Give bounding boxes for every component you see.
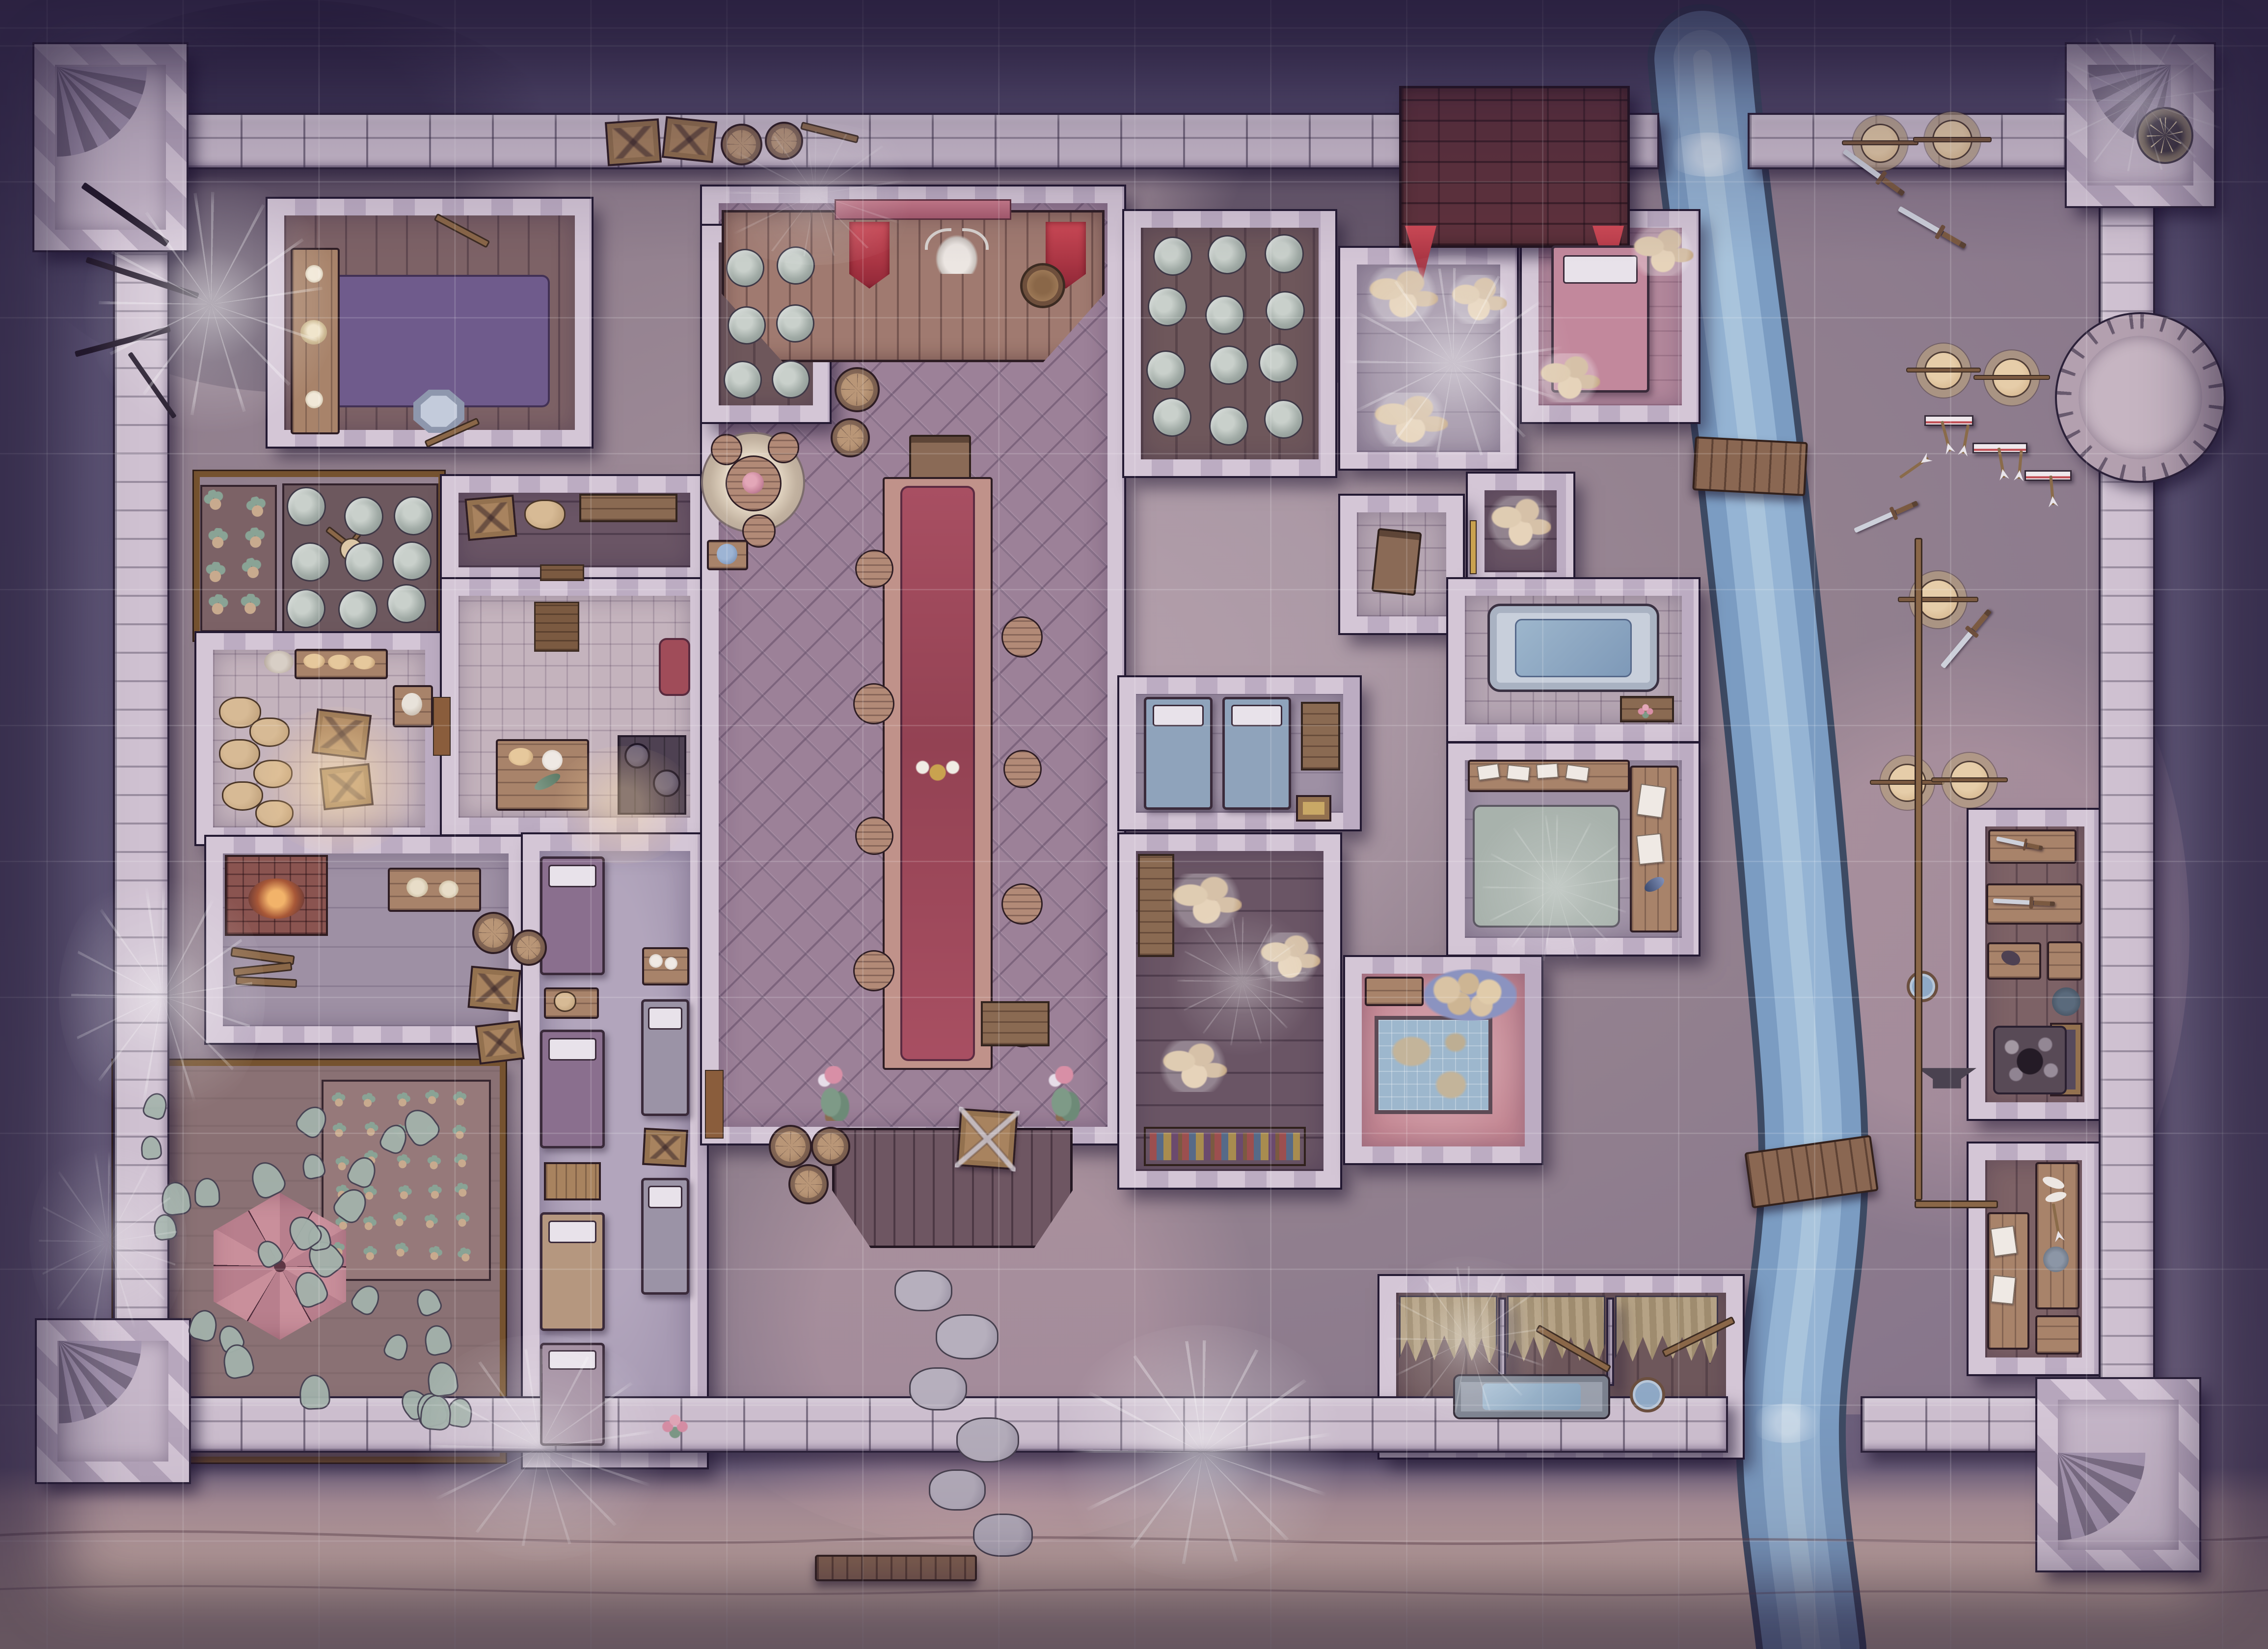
beach-plank xyxy=(815,1555,977,1581)
cup xyxy=(665,957,677,970)
candlestick xyxy=(305,391,323,408)
hearth-table xyxy=(388,868,481,912)
deer-skull xyxy=(935,235,978,274)
letter xyxy=(1565,764,1590,782)
letter xyxy=(1536,763,1559,779)
head-chair xyxy=(909,435,971,480)
tool-bench xyxy=(2035,1315,2080,1355)
door-threshold xyxy=(540,564,584,581)
bed xyxy=(641,999,689,1116)
bed xyxy=(641,1178,689,1295)
chained-crate xyxy=(956,1108,1018,1170)
coin-sack xyxy=(554,991,576,1012)
door-threshold xyxy=(705,1070,724,1139)
practice-dummy xyxy=(1917,579,1959,620)
spider-web xyxy=(403,1335,677,1561)
purple-rug xyxy=(319,275,550,407)
scroll-pile xyxy=(1424,969,1517,1021)
bowl xyxy=(439,880,459,898)
orchard-row-sprout xyxy=(330,1091,348,1109)
bed xyxy=(540,1212,605,1331)
orchard-row-sprout xyxy=(331,1122,348,1140)
yard-fence xyxy=(1915,538,1922,1200)
archery-target xyxy=(1924,415,1973,426)
stall-divider xyxy=(1606,1298,1614,1386)
orchard-row-sprout xyxy=(427,1185,443,1200)
bread-loaf xyxy=(303,654,325,668)
spider-web xyxy=(1473,805,1640,972)
paper-sheet xyxy=(1637,784,1666,819)
forge xyxy=(1993,1026,2067,1094)
tulip-pot xyxy=(811,1066,856,1121)
practice-dummy xyxy=(1950,761,1989,800)
dark-plate xyxy=(2052,987,2080,1016)
barrel xyxy=(811,1127,850,1166)
bed xyxy=(540,1030,605,1148)
blade-table xyxy=(2047,941,2082,981)
candelabra xyxy=(914,751,961,790)
spider-web xyxy=(1168,908,1316,1055)
spider-web xyxy=(1051,1325,1355,1580)
stepping-stone xyxy=(894,1270,952,1311)
wall-crate xyxy=(605,118,662,166)
orchard-row-sprout xyxy=(393,1153,412,1171)
gold-door xyxy=(1470,520,1477,574)
battle-map xyxy=(0,0,2268,1649)
orchard-row-sprout xyxy=(424,1090,440,1106)
spider-web xyxy=(83,177,339,432)
stool xyxy=(855,817,893,855)
barrel xyxy=(831,418,870,457)
lantern-glow xyxy=(255,707,422,854)
spider-web xyxy=(697,123,933,265)
stool xyxy=(1003,750,1042,788)
dresser xyxy=(1301,702,1340,771)
flower-sprig xyxy=(1635,699,1656,720)
wash-bowl xyxy=(264,651,294,673)
spider-web xyxy=(1375,1256,1561,1423)
kitchen-mat xyxy=(534,602,579,652)
pan xyxy=(2043,1247,2069,1272)
orchard-row-sprout xyxy=(362,1246,378,1262)
waterfall-foam xyxy=(1748,1404,1826,1443)
seedling xyxy=(206,528,230,551)
orchard-row-sprout xyxy=(454,1212,471,1229)
gatehouse xyxy=(1399,86,1630,248)
blue-jug xyxy=(717,544,737,564)
barrel xyxy=(769,1125,812,1168)
barrel xyxy=(835,367,880,412)
orchard-row-sprout xyxy=(391,1211,408,1228)
seedling xyxy=(243,527,268,551)
cup xyxy=(649,954,663,968)
practice-dummy xyxy=(1992,358,2031,398)
bead-tray xyxy=(1365,977,1424,1006)
stool xyxy=(1001,883,1043,925)
yard-barrel xyxy=(511,930,547,966)
yard-barrel xyxy=(472,912,514,954)
round-shield xyxy=(1020,263,1065,308)
door-threshold xyxy=(433,697,451,756)
bowl xyxy=(406,878,428,897)
archery-target xyxy=(2025,470,2072,481)
spider-web xyxy=(59,864,265,1129)
potato-sack xyxy=(219,739,260,770)
broken-chair xyxy=(1371,528,1422,596)
gold-chest xyxy=(1296,795,1331,822)
bench xyxy=(544,1162,601,1200)
map-table xyxy=(1375,1016,1492,1114)
stool xyxy=(853,683,894,724)
stool xyxy=(855,550,893,588)
bread-loaf xyxy=(328,655,351,669)
bread-loaf xyxy=(509,748,533,766)
stable-bucket xyxy=(1630,1377,1665,1412)
jug xyxy=(402,693,422,716)
arrow-plan xyxy=(1991,1275,2016,1305)
stepping-stone xyxy=(956,1417,1019,1463)
bed xyxy=(1144,697,1213,810)
letter xyxy=(1477,763,1500,781)
water-bucket xyxy=(1907,971,1938,1002)
stool xyxy=(1001,616,1043,658)
bed xyxy=(540,856,605,975)
seedling xyxy=(239,593,263,617)
round-bastion xyxy=(2057,314,2224,481)
cabbage xyxy=(1153,236,1193,276)
stepping-stone xyxy=(973,1514,1033,1557)
pantry-sack xyxy=(524,500,566,530)
red-mat xyxy=(659,638,690,696)
bookshelf xyxy=(1144,1127,1306,1166)
stool xyxy=(768,432,799,463)
yard-fence xyxy=(1915,1200,1998,1208)
porch-deck xyxy=(832,1128,1073,1248)
stool xyxy=(853,950,894,991)
practice-dummy xyxy=(1932,120,1972,160)
seedling xyxy=(205,593,230,618)
wall-crate xyxy=(662,116,717,163)
stepping-stone xyxy=(909,1367,967,1410)
spider-web xyxy=(2037,20,2243,182)
orchard-row-sprout xyxy=(451,1090,469,1108)
river-bridge xyxy=(1692,436,1808,496)
blue-tub xyxy=(1487,604,1659,692)
orchard-row-sprout xyxy=(451,1124,468,1141)
lantern-glow xyxy=(550,746,697,864)
cabinet xyxy=(981,1001,1050,1046)
plate xyxy=(542,750,563,771)
arrow-plan xyxy=(1990,1225,2018,1257)
bread-loaf xyxy=(353,656,375,669)
pantry-crate xyxy=(464,495,517,541)
bed xyxy=(1222,697,1291,810)
paper-sheet xyxy=(1636,833,1664,865)
yard-crate xyxy=(467,966,521,1012)
waterfall-foam xyxy=(1664,133,1753,177)
egg-sacs xyxy=(1487,496,1551,550)
stepping-stone xyxy=(929,1469,986,1511)
flower-vase xyxy=(742,472,764,494)
stool xyxy=(711,434,742,465)
orchard-row-sprout xyxy=(425,1155,442,1172)
spider-web xyxy=(29,1129,187,1355)
orchard-row-sprout xyxy=(362,1121,380,1139)
yard-crate xyxy=(475,1020,524,1065)
shoreline xyxy=(0,1586,2268,1595)
practice-dummy xyxy=(1924,351,1963,390)
egg-sacs xyxy=(1630,227,1694,276)
letter xyxy=(1507,765,1531,782)
practice-dummy xyxy=(1861,124,1900,163)
dorm-crate xyxy=(642,1128,688,1168)
stepping-stone xyxy=(936,1314,999,1359)
spider-web xyxy=(1325,255,1581,471)
barrel xyxy=(788,1164,829,1204)
orchard-row-sprout xyxy=(334,1155,351,1172)
pantry-shelf xyxy=(579,494,677,522)
seedling xyxy=(203,561,227,585)
tulip-pot xyxy=(1042,1066,1087,1121)
